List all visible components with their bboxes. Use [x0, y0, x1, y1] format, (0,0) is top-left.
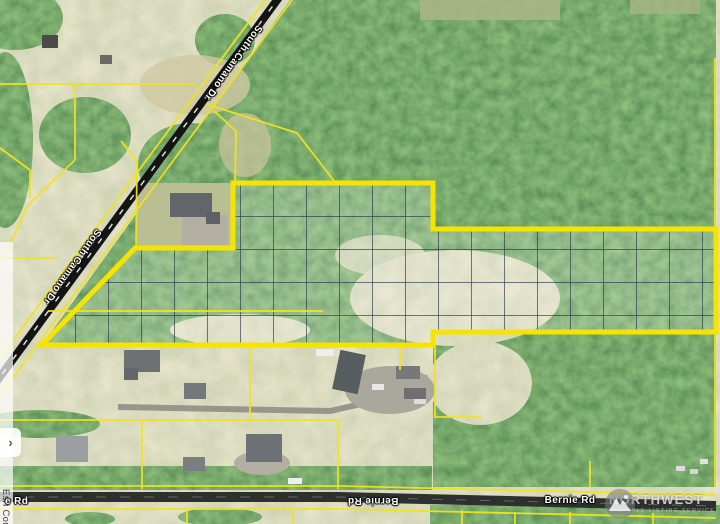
building [42, 35, 58, 48]
building [206, 212, 220, 224]
nwmls-watermark: NORTHWEST MULTIPLE LISTING SERVICE [604, 488, 715, 514]
building [124, 368, 138, 380]
building [183, 457, 205, 471]
chevron-right-icon: › [8, 435, 12, 450]
road-label-bernie-partial: e Rd [5, 496, 28, 507]
attribution-expand-button[interactable]: › [0, 428, 21, 457]
building [184, 383, 206, 399]
building [56, 436, 88, 462]
building [170, 193, 212, 217]
road-label-bernie-center: Bernie Rd [323, 495, 423, 506]
aerial-map-canvas[interactable] [0, 0, 720, 524]
mountain-logo-icon [604, 488, 636, 520]
building [404, 388, 426, 399]
forest-area [39, 97, 131, 173]
attribution-strip: Esri Community Maps Contrib nd County, W [0, 242, 13, 524]
building [100, 55, 112, 64]
building [246, 434, 282, 462]
mls-aerial-map-view[interactable]: South Camano Dr South Camano Dr Bernie R… [0, 0, 720, 524]
